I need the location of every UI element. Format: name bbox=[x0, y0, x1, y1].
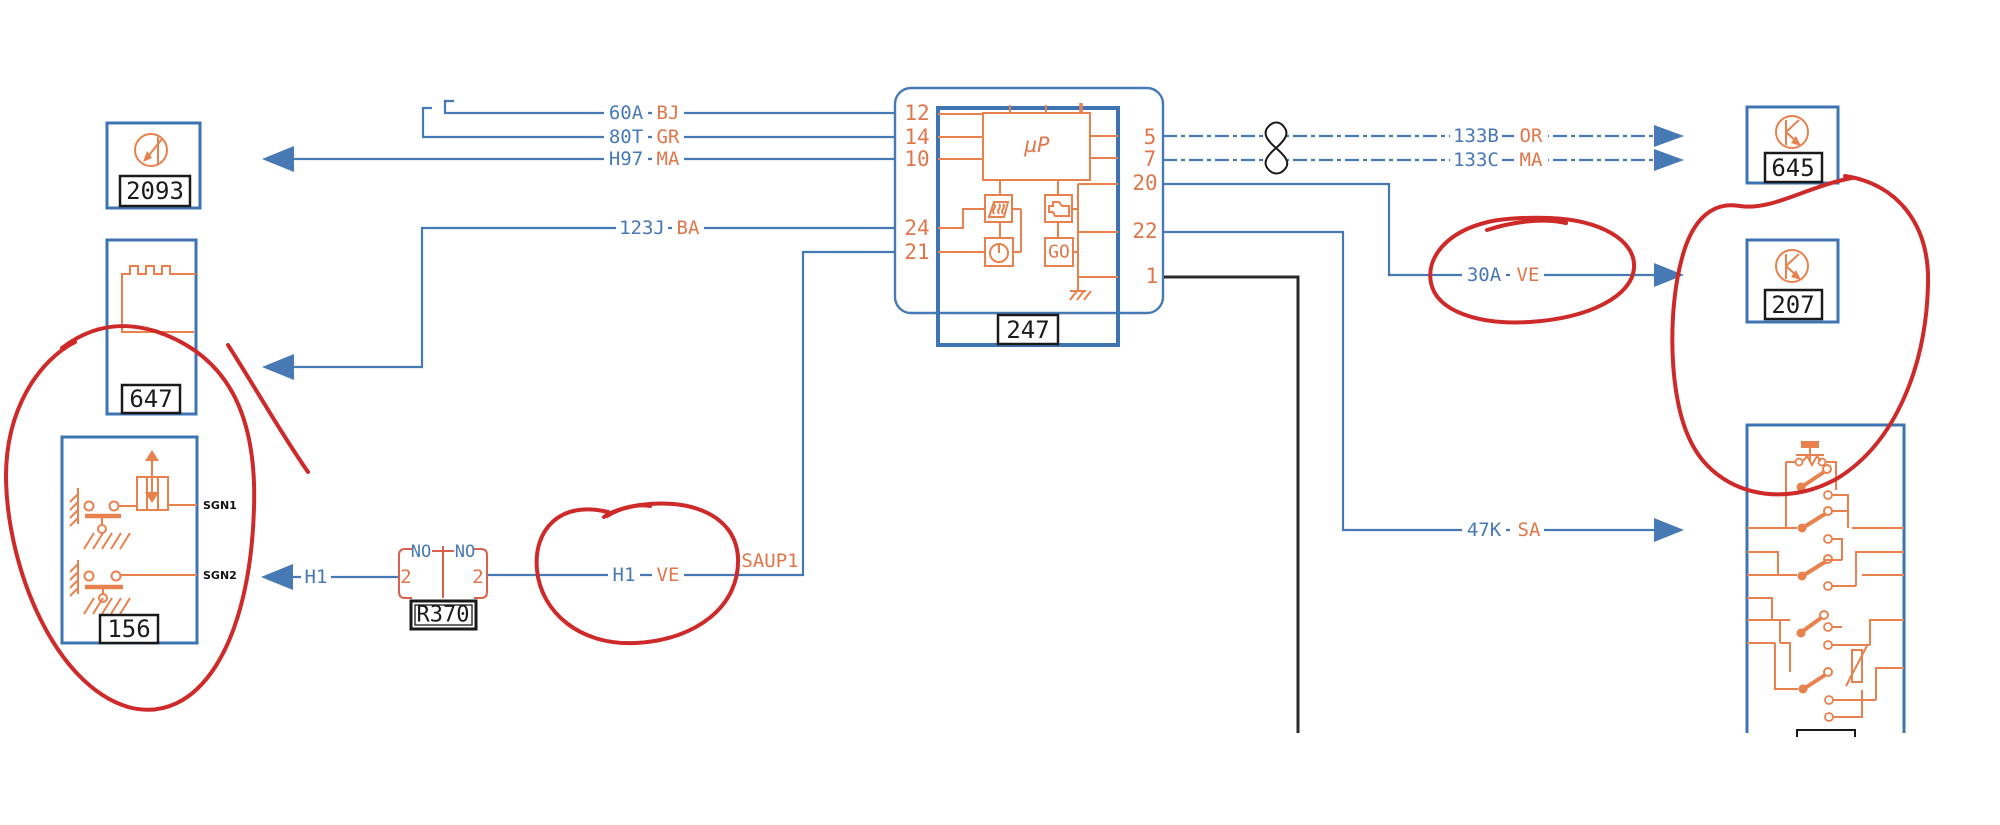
wire-h1: H1 bbox=[261, 564, 399, 590]
svg-text:MA: MA bbox=[657, 148, 680, 170]
k-symbol-icon bbox=[1776, 116, 1808, 148]
k-symbol-icon bbox=[1776, 250, 1808, 282]
arrow-left-icon bbox=[261, 564, 293, 590]
microprocessor-block: µP bbox=[983, 103, 1090, 180]
svg-text:133B: 133B bbox=[1453, 125, 1499, 147]
wire-123j-ba: 123J BA bbox=[262, 217, 895, 380]
pin-24: 24 bbox=[904, 216, 929, 240]
relay-pin-left: 2 bbox=[400, 566, 411, 588]
contact-no-left: NO bbox=[411, 542, 431, 562]
k-symbol-icon bbox=[135, 134, 167, 166]
component-id: R370 bbox=[417, 603, 470, 628]
svg-text:VE: VE bbox=[657, 564, 680, 586]
svg-text:123J: 123J bbox=[619, 217, 665, 239]
wire-h1-ve-saup1: H1 VE SAUP1 bbox=[488, 252, 895, 586]
svg-text:H1: H1 bbox=[613, 564, 636, 586]
component-645: 645 bbox=[1747, 107, 1838, 183]
wire-133c-ma: 133C MA bbox=[1163, 149, 1684, 171]
svg-text:133C: 133C bbox=[1453, 149, 1499, 171]
annotation-red-marker bbox=[6, 176, 1928, 710]
ground-icon bbox=[1070, 291, 1091, 300]
svg-text:GR: GR bbox=[657, 126, 680, 148]
go-label: GO bbox=[1048, 242, 1070, 263]
pin-22: 22 bbox=[1132, 219, 1157, 243]
pin-7: 7 bbox=[1144, 147, 1157, 171]
connector-housing bbox=[895, 88, 1163, 313]
wire-pin1-ground bbox=[1163, 277, 1298, 733]
component-id: 645 bbox=[1771, 154, 1814, 182]
clock-icon bbox=[985, 238, 1013, 266]
wire-color: BJ bbox=[657, 102, 680, 124]
go-block: GO bbox=[1045, 238, 1073, 266]
ground-icon bbox=[84, 533, 130, 549]
svg-text:SA: SA bbox=[1518, 519, 1541, 541]
component-id: 247 bbox=[1006, 316, 1049, 344]
component-156: SGN1 SGN2 156 bbox=[62, 437, 237, 643]
component-247: 12 14 10 24 21 5 7 20 22 1 µP bbox=[895, 88, 1163, 345]
annotation-circle-156 bbox=[6, 326, 254, 710]
engine-icon bbox=[1045, 195, 1072, 222]
contact-no-right: NO bbox=[455, 542, 475, 562]
svg-text:MA: MA bbox=[1520, 149, 1543, 171]
cutoff-label-box bbox=[1797, 730, 1855, 737]
component-switch-unit bbox=[1747, 425, 1904, 737]
svg-text:VE: VE bbox=[1517, 264, 1540, 286]
svg-text:H1: H1 bbox=[305, 566, 328, 588]
svg-text:47K: 47K bbox=[1467, 519, 1502, 541]
pin-21: 21 bbox=[904, 240, 929, 264]
svg-text:BA: BA bbox=[677, 217, 700, 239]
arrow-right-icon bbox=[1654, 518, 1684, 542]
svg-text:30A: 30A bbox=[1467, 264, 1502, 286]
pin-1: 1 bbox=[1146, 264, 1159, 288]
motor-switch-icon bbox=[70, 450, 197, 549]
arrow-left-icon bbox=[262, 146, 294, 172]
wire-h97-ma: H97 MA bbox=[262, 146, 895, 172]
wire-label-saup1: SAUP1 bbox=[741, 550, 798, 572]
cpu-label: µP bbox=[1023, 133, 1050, 157]
annotation-hook-h1ve bbox=[607, 505, 650, 516]
pin-10: 10 bbox=[904, 147, 929, 171]
component-207: 207 bbox=[1747, 240, 1838, 322]
twisted-pair-icon bbox=[1266, 123, 1288, 174]
arrow-right-icon bbox=[1654, 125, 1684, 147]
wire-code: 60A bbox=[609, 102, 644, 124]
arrow-left-icon bbox=[262, 354, 294, 380]
wire-60a-bj: 60A BJ bbox=[445, 101, 895, 124]
pin-sgn2: SGN2 bbox=[203, 569, 237, 582]
switch-icon bbox=[70, 560, 197, 614]
wire-30a-ve: 30A VE bbox=[1163, 184, 1684, 287]
svg-text:OR: OR bbox=[1520, 125, 1543, 147]
pulse-symbol-icon bbox=[122, 266, 196, 332]
wire-133b-or: 133B OR bbox=[1163, 125, 1684, 147]
pin-14: 14 bbox=[904, 125, 929, 149]
pin-5: 5 bbox=[1144, 125, 1157, 149]
relay-r370: NO NO 2 2 R370 bbox=[399, 542, 487, 629]
pin-12: 12 bbox=[904, 101, 929, 125]
component-id: 2093 bbox=[126, 177, 184, 205]
component-id: 156 bbox=[107, 615, 150, 643]
annotation-circle-207 bbox=[1672, 176, 1928, 494]
arrow-right-icon bbox=[1654, 149, 1684, 171]
wiring-diagram-page: 60A BJ 80T GR H97 MA 123J BA 133B OR bbox=[0, 0, 2000, 825]
defrost-icon bbox=[985, 195, 1012, 222]
thermistor-icon bbox=[1846, 644, 1868, 686]
pin-sgn1: SGN1 bbox=[203, 499, 237, 512]
component-id: 647 bbox=[129, 385, 172, 413]
relay-pin-right: 2 bbox=[472, 566, 483, 588]
component-id: 207 bbox=[1771, 291, 1814, 319]
svg-text:H97: H97 bbox=[609, 148, 643, 170]
component-2093: 2093 bbox=[107, 123, 200, 208]
svg-text:80T: 80T bbox=[609, 126, 643, 148]
pin-20: 20 bbox=[1132, 171, 1157, 195]
